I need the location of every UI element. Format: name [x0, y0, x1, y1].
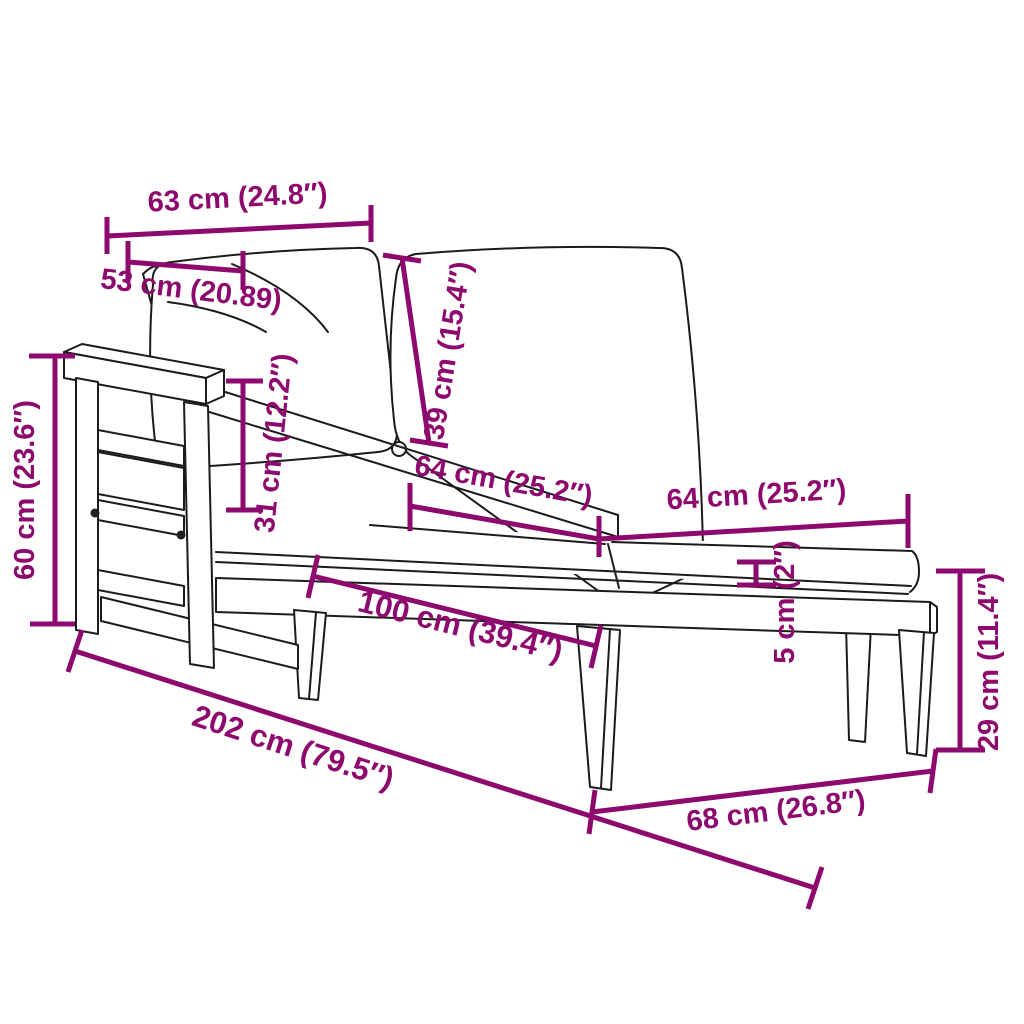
front-middle-leg — [577, 626, 620, 790]
screw-dot-1 — [91, 509, 100, 518]
label-back-width: 63 cm (24.8″) — [147, 177, 328, 218]
head-frame-front-post — [184, 402, 214, 668]
dimension-202cm — [68, 630, 822, 909]
label-frame-height: 60 cm (23.6″) — [9, 400, 41, 580]
dimension-202cm-line — [68, 630, 822, 909]
front-right-leg — [899, 630, 934, 756]
screw-dot-2 — [177, 531, 186, 540]
lounger-dimension-diagram: 63 cm (24.8″) 53 cm (20.89) 39 cm (15.4″… — [0, 0, 1024, 1024]
rear-right-leg — [846, 624, 871, 742]
label-leg-height: 29 cm (11.4″) — [973, 573, 1005, 751]
head-frame-rear-post — [76, 378, 98, 634]
label-cushion-thickness: 5 cm (2″) — [769, 540, 801, 664]
bed-rail-end — [930, 602, 937, 636]
dimension-diagram-page: 63 cm (24.8″) 53 cm (20.89) 39 cm (15.4″… — [0, 0, 1024, 1024]
